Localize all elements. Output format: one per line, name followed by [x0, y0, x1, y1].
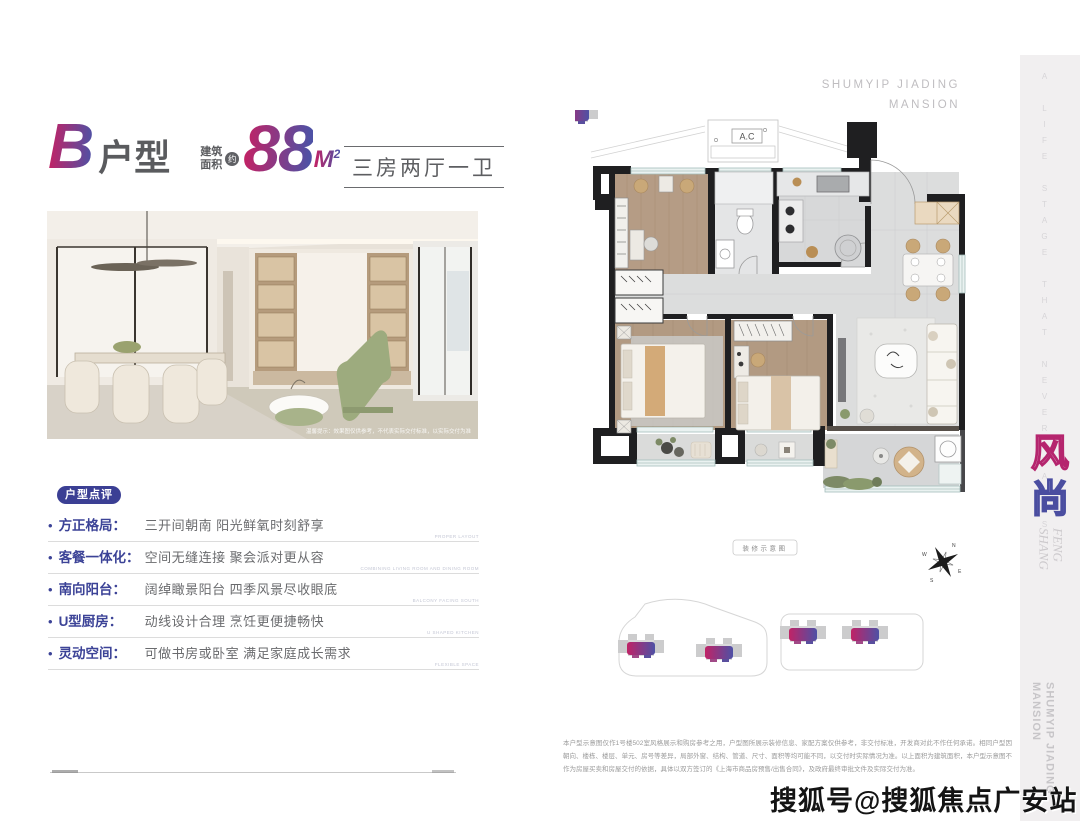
bullet-icon: • [48, 583, 53, 596]
feature-term: 南向阳台： [59, 578, 145, 598]
watermark: 搜狐号@搜狐焦点广安站 [770, 779, 1077, 818]
bullet-icon: • [48, 551, 53, 564]
feature-en: U SHAPED KITCHEN [427, 630, 479, 635]
feature-desc: 动线设计合理 烹饪更便捷畅快 [145, 611, 325, 630]
fengshang-english: FENG SHANG [1036, 528, 1065, 628]
site-diagram-left [619, 599, 767, 676]
feng-character: 风 [1031, 433, 1069, 475]
photo-caption: 温馨提示：效果图仅供参考，不代表实际交付标准，以实际交付为准 [306, 427, 472, 435]
feature-term: 灵动空间： [59, 642, 145, 662]
layout-summary: 三房两厅一卫 [344, 146, 504, 188]
feature-desc: 三开间朝南 阳光鲜氧时刻舒享 [145, 515, 325, 534]
feature-item: • 方正格局： 三开间朝南 阳光鲜氧时刻舒享 PROPER LAYOUT [48, 510, 479, 542]
feature-item: • 南向阳台： 阔绰瞰景阳台 四季风景尽收眼底 BALCONY FACING S… [48, 574, 479, 606]
fengshang-logo: 风 尚 [1028, 428, 1072, 522]
title-block: B 户型 建筑 面积 约 88 M2 [48, 118, 340, 176]
svg-text:E: E [958, 569, 962, 575]
feature-term: 方正格局： [59, 514, 145, 534]
area-unit: M2 [314, 148, 341, 172]
review-badge: 户型点评 [57, 486, 121, 504]
unit-letter: B [48, 118, 94, 176]
feature-item: • 客餐一体化： 空间无缝连接 聚会派对更从容 COMBINING LIVING… [48, 542, 479, 574]
feature-desc: 可做书房或卧室 满足家庭成长需求 [145, 643, 352, 662]
building-footprint [575, 110, 598, 124]
feature-en: COMBINING LIVING ROOM AND DINING ROOM [360, 566, 479, 571]
feature-list: • 方正格局： 三开间朝南 阳光鲜氧时刻舒享 PROPER LAYOUT • 客… [48, 510, 479, 670]
bullet-icon: • [48, 615, 53, 628]
unit-label: 户型 [98, 140, 170, 176]
bullet-icon: • [48, 519, 53, 532]
disclaimer-text: 本户型示意图仅作1号楼502室风格展示和购房参考之用，户型图所展示装修信息、家配… [563, 737, 1012, 776]
approx-badge: 约 [225, 152, 239, 166]
brochure-page: A LIFE STAGE THAT NEVER FADES 风 尚 FENG S… [0, 0, 1080, 821]
compass-icon: N E S W [920, 539, 966, 585]
area-label: 建筑 面积 约 [200, 146, 239, 171]
feature-desc: 空间无缝连接 聚会派对更从容 [145, 547, 325, 566]
feature-en: BALCONY FACING SOUTH [413, 598, 479, 603]
svg-text:N: N [952, 543, 956, 549]
area-value: 88 [243, 120, 312, 176]
shang-character: 尚 [1031, 479, 1069, 521]
feature-en: PROPER LAYOUT [435, 534, 479, 539]
area-prefix: 建筑 面积 [200, 146, 222, 171]
ac-platform: A.C [708, 120, 778, 162]
decor-legend: 装修示意图 [733, 540, 797, 555]
feature-term: 客餐一体化： [59, 546, 145, 566]
feature-item: • U型厨房： 动线设计合理 烹饪更便捷畅快 U SHAPED KITCHEN [48, 606, 479, 638]
feature-term: U型厨房： [59, 610, 145, 630]
bullet-icon: • [48, 647, 53, 660]
svg-text:装修示意图: 装修示意图 [743, 544, 788, 553]
ac-label: A.C [739, 132, 755, 142]
footer-rule [50, 772, 456, 773]
feature-item: • 灵动空间： 可做书房或卧室 满足家庭成长需求 FLEXIBLE SPACE [48, 638, 479, 670]
interior-rendering: 温馨提示：效果图仅供参考，不代表实际交付标准，以实际交付为准 [47, 211, 478, 439]
feature-en: FLEXIBLE SPACE [435, 662, 479, 667]
svg-text:W: W [922, 552, 927, 558]
feature-desc: 阔绰瞰景阳台 四季风景尽收眼底 [145, 579, 338, 598]
svg-text:S: S [930, 578, 934, 584]
floor-plan: A.C [575, 110, 1015, 690]
